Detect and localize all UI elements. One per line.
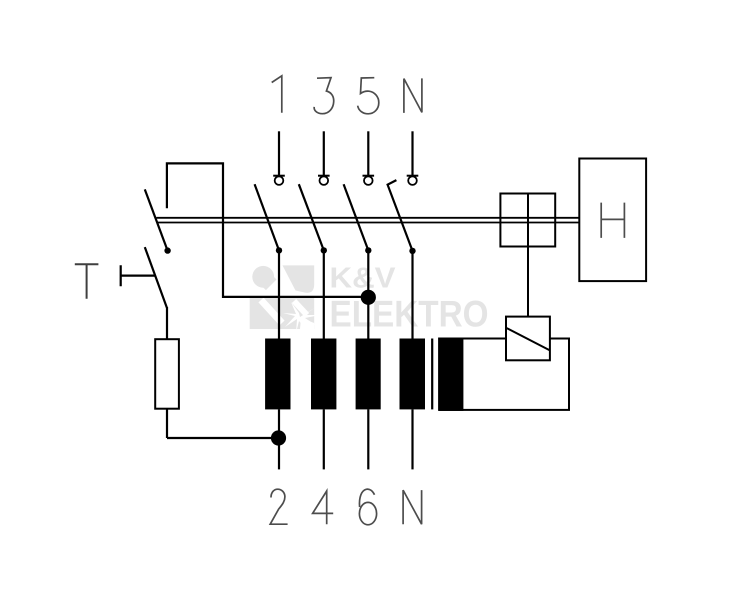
svg-text:K&V: K&V	[330, 262, 397, 294]
svg-text:ELEKTRO: ELEKTRO	[330, 294, 489, 335]
